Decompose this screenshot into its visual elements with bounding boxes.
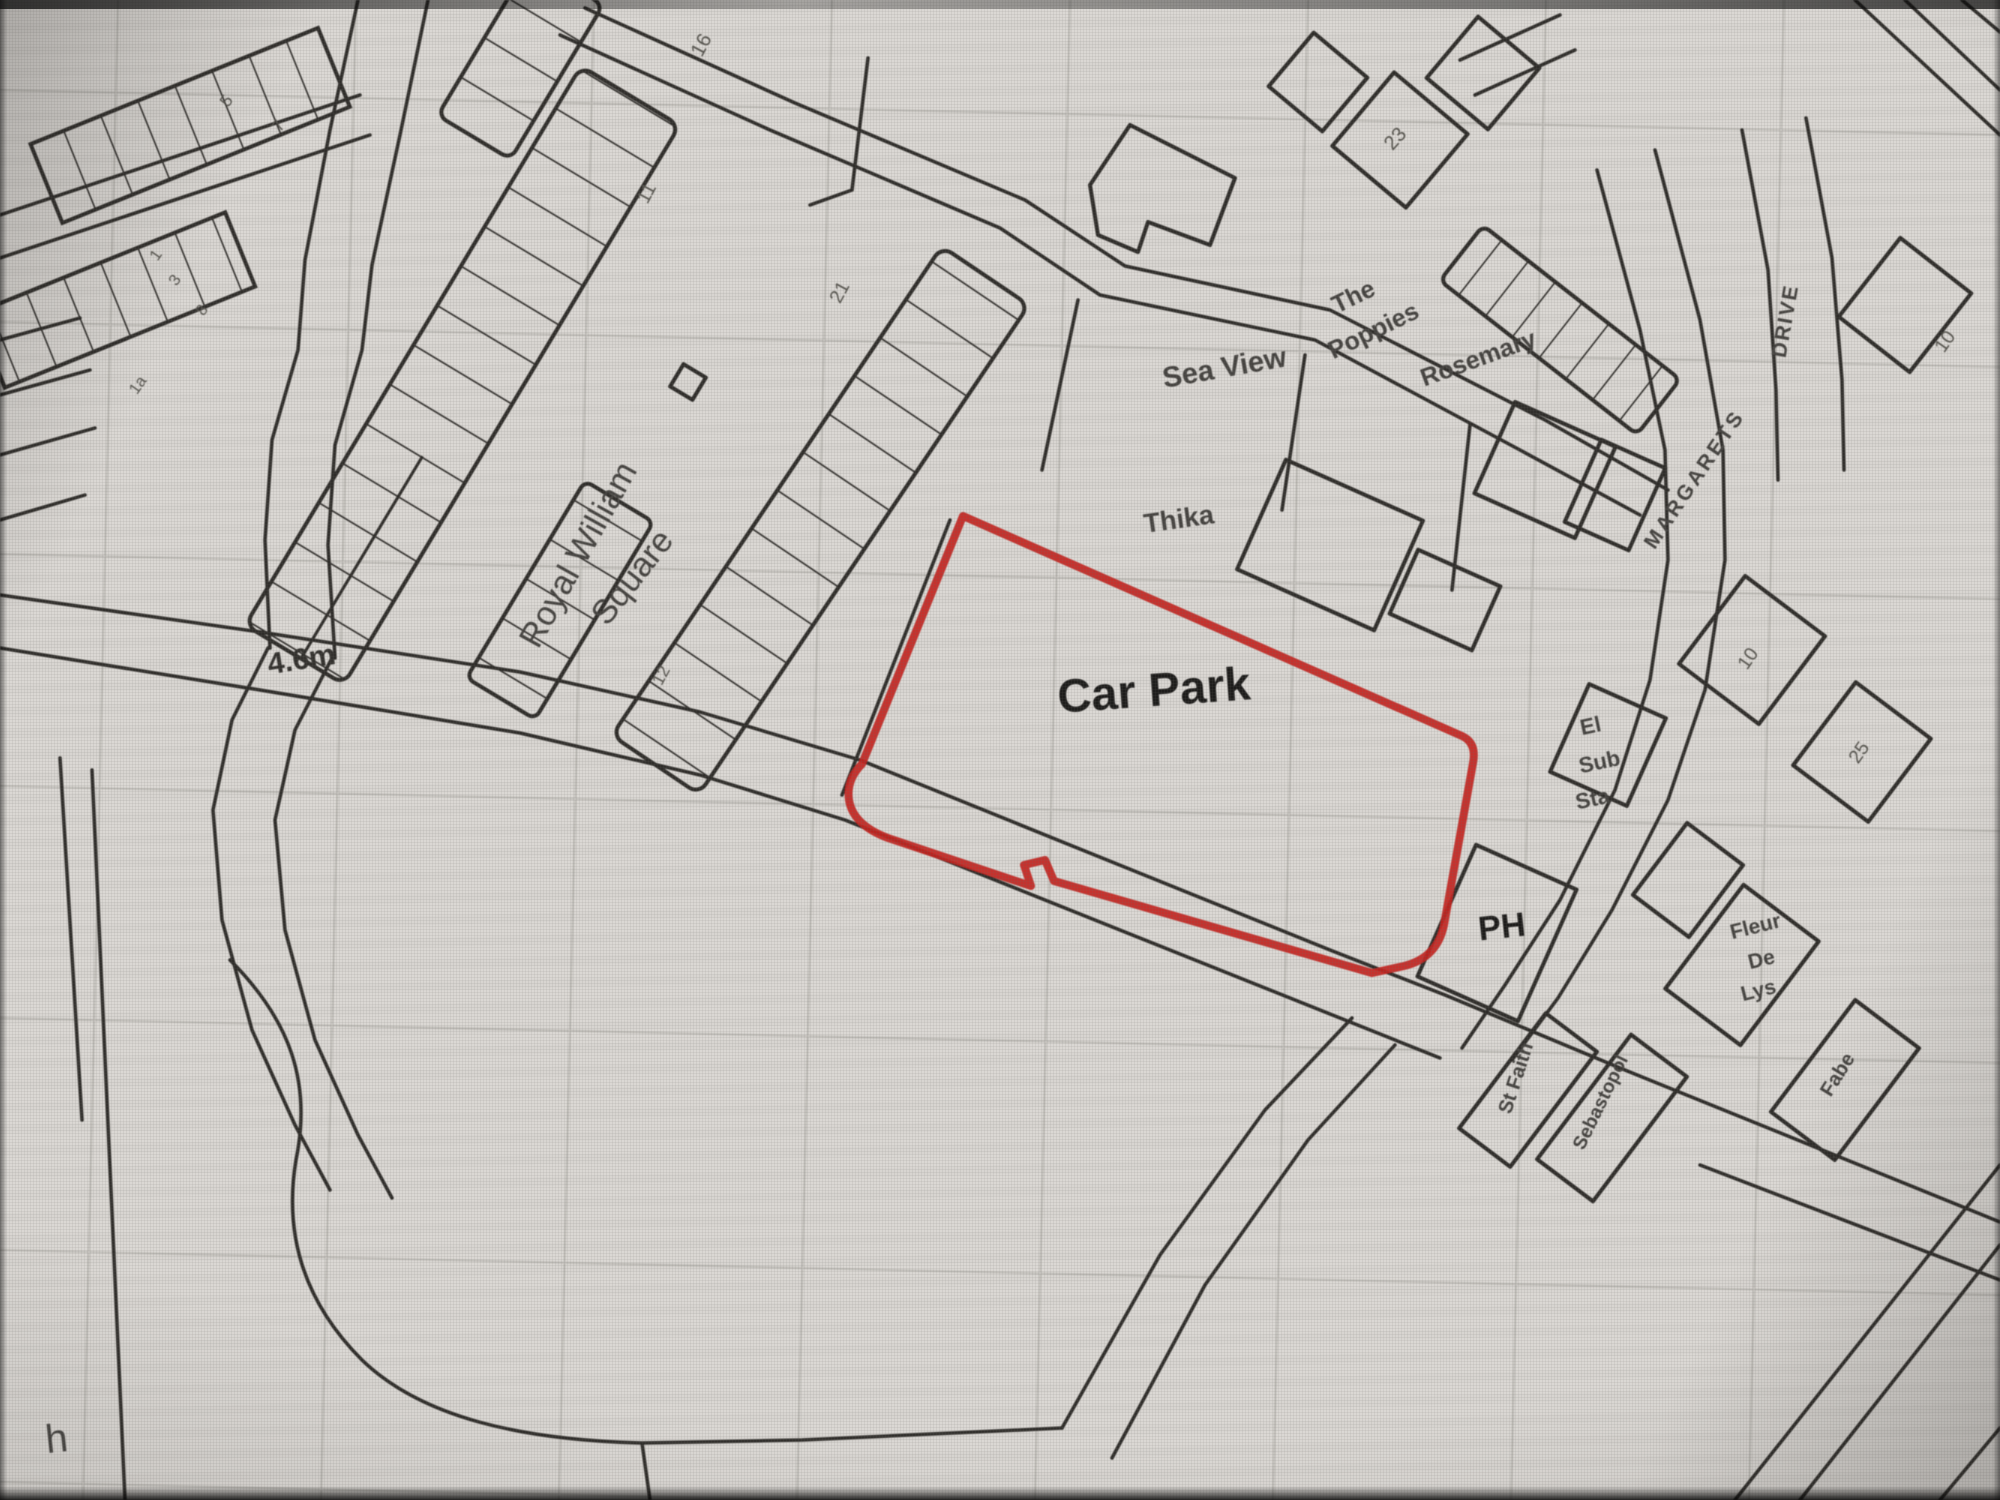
map-label-fabe: Fabe (1816, 1049, 1859, 1100)
map-labels-layer: Royal WilliamSquareSea ViewThePoppiesRos… (43, 30, 1960, 1462)
map-photo: Royal WilliamSquareSea ViewThePoppiesRos… (0, 0, 2000, 1500)
map-label-sub: Sub (1577, 745, 1623, 778)
map-label-thika: Thika (1142, 499, 1217, 539)
map-label-h-partial: h (43, 1416, 70, 1462)
map-label-no-25: 25 (1845, 738, 1874, 767)
map-label-ph: PH (1476, 906, 1527, 949)
map-label-fleur: Fleur (1728, 909, 1783, 944)
building-footprints (670, 17, 1971, 1202)
map-label-no-1a: 1a (126, 373, 150, 397)
road-lines (0, 0, 2000, 1500)
map-canvas: Royal WilliamSquareSea ViewThePoppiesRos… (0, 0, 2000, 1500)
terrace-blocks (0, 0, 1680, 794)
map-label-rosemary: Rosemary (1417, 325, 1540, 393)
map-grid-lines (0, 0, 2000, 1500)
map-label-drive: DRIVE (1768, 282, 1804, 359)
map-label-no-23: 23 (1380, 123, 1411, 154)
map-label-car-park: Car Park (1056, 656, 1253, 722)
map-label-margarets: MARGARETS (1640, 406, 1750, 553)
map-label-el: El (1578, 711, 1604, 740)
map-label-no-10b: 10 (1931, 327, 1960, 356)
map-label-no-10: 10 (1734, 644, 1763, 673)
street-map-svg: Royal WilliamSquareSea ViewThePoppiesRos… (0, 0, 2000, 1500)
map-label-no-21: 21 (826, 278, 854, 307)
map-label-de: De (1746, 945, 1778, 974)
